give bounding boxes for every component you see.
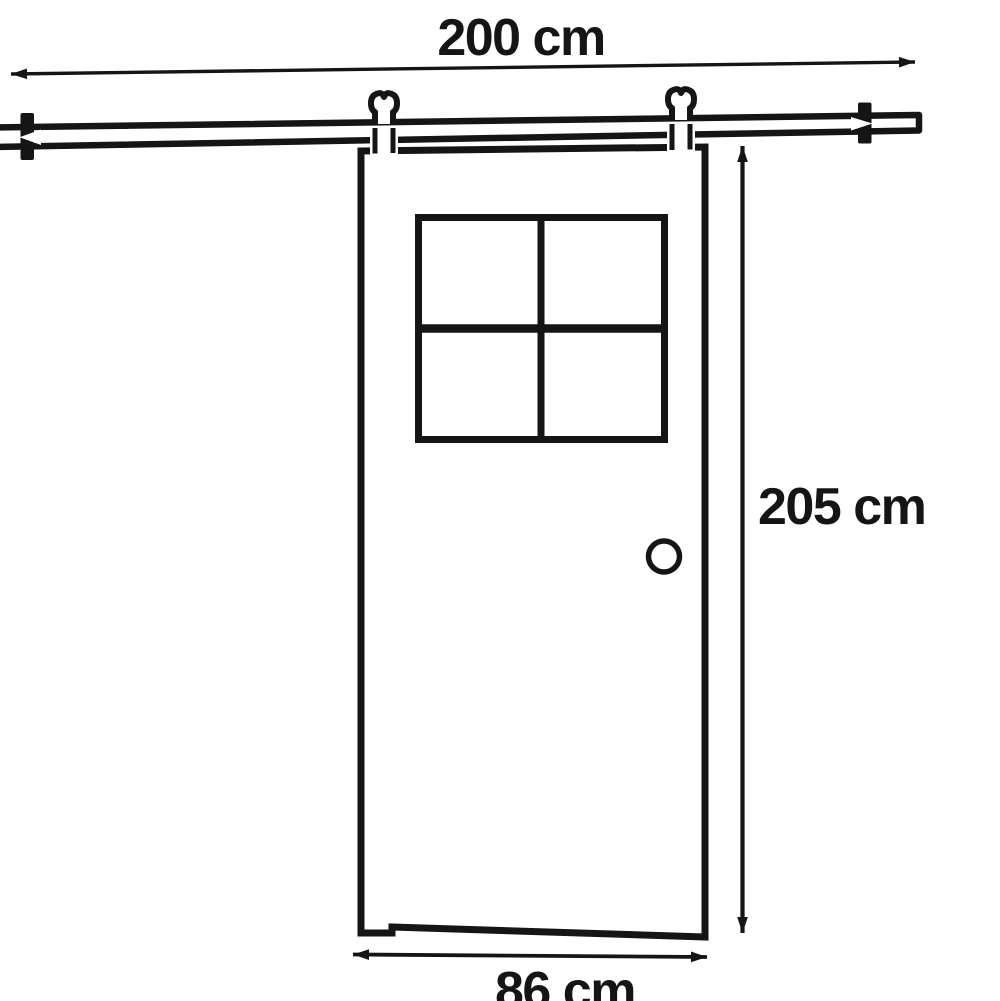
dimension-track-width: 200 cm: [11, 9, 915, 74]
door: [361, 147, 705, 937]
hanger-loop: [668, 89, 694, 120]
door-width-dimension-line: [353, 955, 707, 958]
door-height-dimension-label: 205 cm: [758, 478, 925, 536]
track-width-dimension-label: 200 cm: [437, 9, 604, 67]
diagram-canvas: 200 cm 205 cm 86 cm: [0, 0, 1000, 1001]
door-width-dimension-label: 86 cm: [495, 962, 635, 1001]
rail-bar: [0, 115, 919, 147]
dimension-door-height: 205 cm: [743, 146, 926, 933]
dimension-door-width: 86 cm: [353, 955, 707, 1001]
door-window: [419, 218, 665, 440]
door-knob: [649, 541, 680, 572]
rail-end-stop-right: [851, 103, 873, 144]
hanger-loop: [371, 93, 397, 124]
rail-end-stop-left: [20, 113, 42, 160]
